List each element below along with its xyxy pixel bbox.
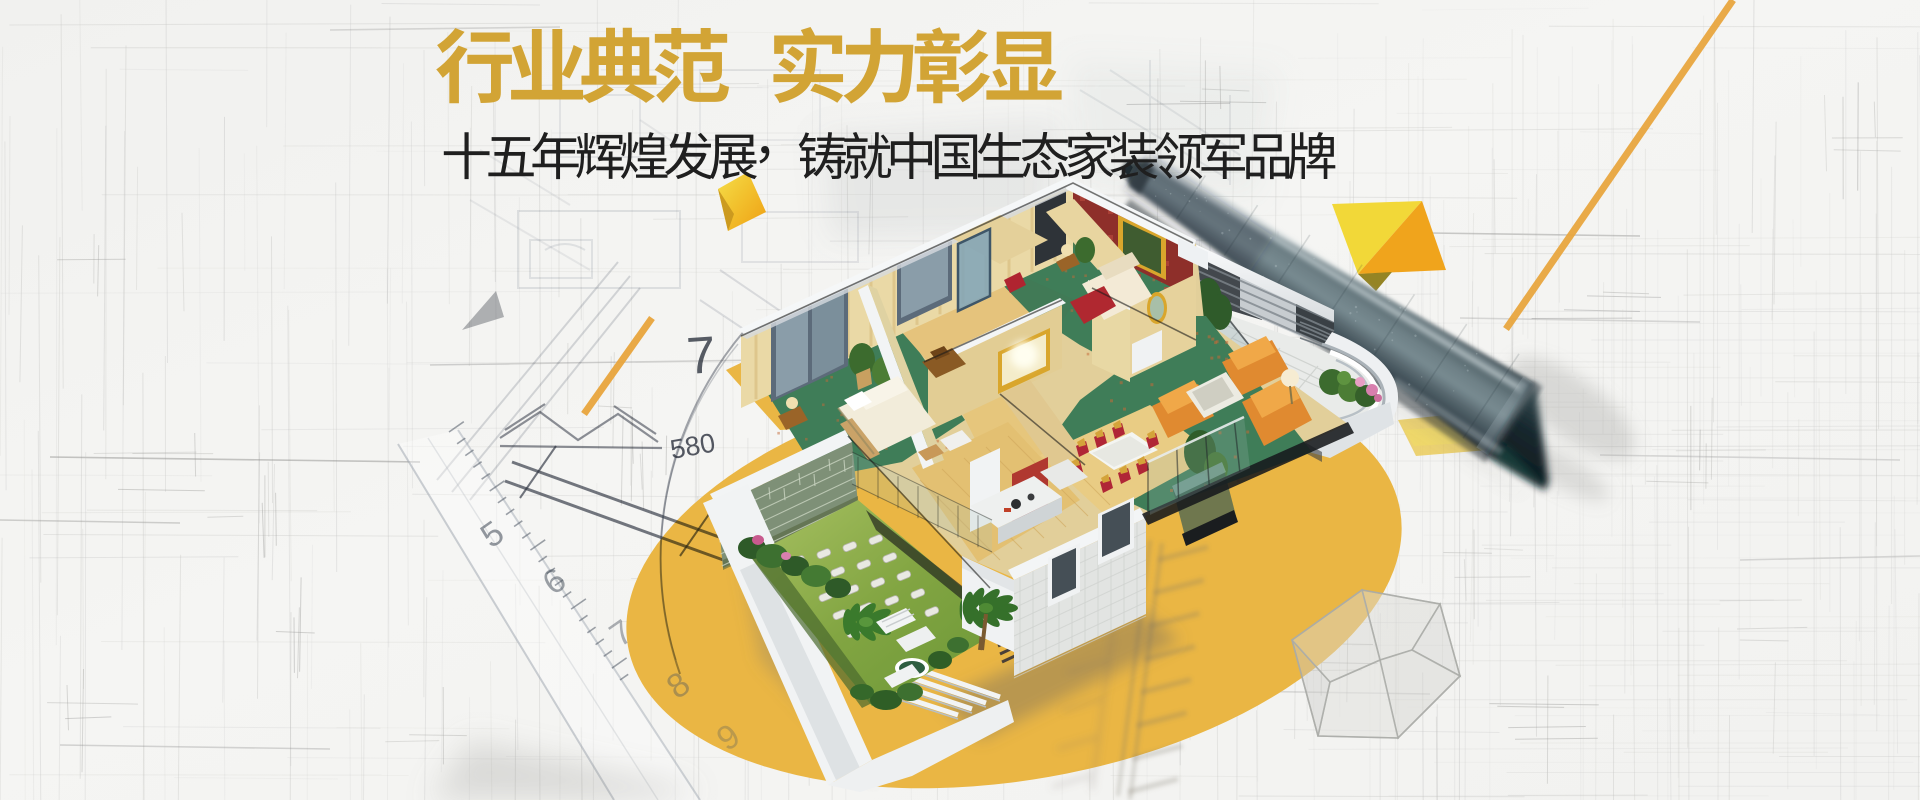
svg-text:7: 7 bbox=[685, 326, 718, 386]
